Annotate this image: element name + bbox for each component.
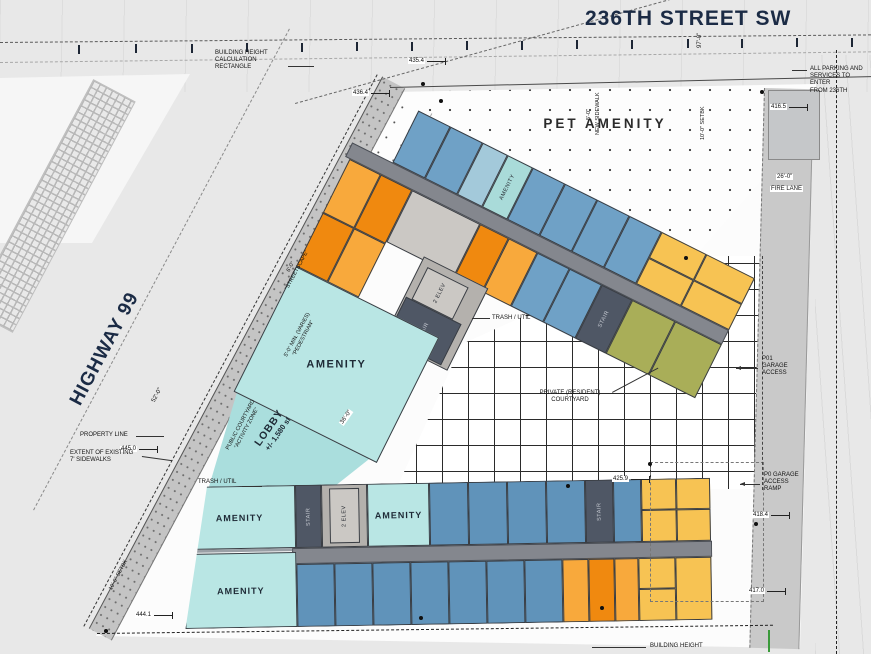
note-property-line: PROPERTY LINE xyxy=(80,432,128,439)
unit-cell xyxy=(334,563,373,627)
stair-label: STAIR xyxy=(305,507,311,525)
note-setback-top: 10'-0" SETBK xyxy=(700,106,707,140)
unit-cell xyxy=(546,480,586,544)
unit-cell xyxy=(562,559,589,622)
leader-line xyxy=(242,486,262,487)
stair-block: STAIR xyxy=(295,485,322,548)
note-p0-ramp: P0 GARAGE ACCESS RAMP xyxy=(764,472,812,494)
amenity-unit-label: AMENITY xyxy=(499,174,517,202)
note-p01-garage: P01 GARAGE ACCESS xyxy=(762,356,806,378)
station-tick xyxy=(466,41,468,50)
dim-52-0: 52'-0" xyxy=(151,387,165,404)
unit-cell xyxy=(524,559,563,623)
lower-building: AMENITY STAIR 2 ELEV AMENITY STAIR AMENI… xyxy=(183,478,713,629)
stair-block: STAIR xyxy=(585,479,614,542)
note-all-parking: ALL PARKING AND SERVICES TO ENTER FROM 2… xyxy=(810,66,871,95)
dim-435-4: 435.4 xyxy=(408,58,445,64)
dim-97-0: 97'-0" xyxy=(697,33,704,48)
unit-cell xyxy=(296,563,335,627)
amenity-label: AMENITY xyxy=(216,512,264,523)
corner-dot xyxy=(421,82,425,86)
station-tick xyxy=(576,40,578,49)
leader-line xyxy=(792,70,807,71)
station-tick xyxy=(411,42,413,51)
amenity-label: AMENITY xyxy=(217,585,265,596)
note-trash-util: TRASH / UTIL xyxy=(492,315,530,322)
amenity-block: AMENITY xyxy=(367,483,430,547)
dim-new-sidewalk: 5'-0" xyxy=(586,109,593,120)
station-tick xyxy=(301,43,303,52)
stair-label: STAIR xyxy=(596,502,602,520)
station-tick xyxy=(631,40,633,49)
unit-cell xyxy=(448,561,487,625)
amenity-label: AMENITY xyxy=(306,359,366,371)
ramp-outline xyxy=(650,462,764,602)
station-tick xyxy=(741,39,743,48)
corner-dot xyxy=(566,484,570,488)
corner-dot xyxy=(754,522,758,526)
station-tick xyxy=(521,41,523,50)
site-plan: AMENITY STAIR 2 ELEV STAIR AMEN xyxy=(0,0,871,654)
elevator-label: 2 ELEV xyxy=(433,282,448,304)
highway-title: HIGHWAY 99 xyxy=(60,278,150,421)
stair-label: STAIR xyxy=(597,310,611,329)
dim-26-0: 26'-0" xyxy=(776,174,793,181)
corner-dot xyxy=(600,606,604,610)
station-tick xyxy=(796,38,798,47)
dim-418-4: 418.4 xyxy=(752,512,789,518)
dim-416-5: 416.5 xyxy=(770,104,807,110)
pet-amenity-label: PET AMENITY xyxy=(505,116,705,131)
unit-cell xyxy=(614,558,639,621)
note-private-courtyard: PRIVATE (RESIDENT) COURTYARD xyxy=(528,390,612,404)
amenity-label: AMENITY xyxy=(375,509,423,520)
corner-dot xyxy=(419,616,423,620)
station-tick xyxy=(135,44,137,53)
note-building-height-calc: BUILDING HEIGHT CALCULATION RECTANGLE xyxy=(215,50,289,72)
leader-line xyxy=(142,456,172,461)
amenity-block: AMENITY xyxy=(184,552,297,629)
station-tick xyxy=(851,38,853,47)
unit-cell xyxy=(468,481,508,545)
dim-436-4: 436.4 xyxy=(352,90,389,96)
unit-cell xyxy=(613,479,642,542)
corner-dot xyxy=(684,256,688,260)
street-title: 236TH STREET SW xyxy=(585,7,791,31)
garage-entry xyxy=(768,90,820,160)
corner-dot xyxy=(648,462,652,466)
corner-dot xyxy=(439,99,443,103)
dim-444-1: 444.1 xyxy=(135,612,172,618)
station-tick xyxy=(687,39,689,48)
note-new-sidewalk: NEW SIDEWALK xyxy=(595,92,602,135)
unit-cell xyxy=(410,561,449,625)
note-building-height: BUILDING HEIGHT xyxy=(650,643,703,650)
corner-dot xyxy=(760,90,764,94)
unit-cell xyxy=(372,562,411,626)
note-extent-sidewalks: EXTENT OF EXISTING 7' SIDEWALKS xyxy=(70,450,144,464)
property-line-east xyxy=(836,50,837,654)
unit-cell xyxy=(486,560,525,624)
elevator-block: 2 ELEV xyxy=(329,488,360,544)
leader-line xyxy=(592,647,646,648)
elevator-label: 2 ELEV xyxy=(341,505,347,527)
unit-cell xyxy=(429,482,469,546)
dim-425-9: 425.9 xyxy=(612,476,649,482)
leader-arrow xyxy=(740,484,760,485)
station-tick xyxy=(356,42,358,51)
corner-dot xyxy=(104,629,108,633)
leader-line xyxy=(288,66,314,67)
survey-marker xyxy=(768,630,770,652)
leader-arrow xyxy=(736,368,758,369)
leader-line xyxy=(472,318,490,319)
unit-cell xyxy=(588,558,615,621)
dim-417-0: 417.0 xyxy=(748,588,785,594)
contours-right xyxy=(815,55,871,654)
unit-cell xyxy=(507,481,547,545)
leader-line xyxy=(136,436,164,437)
note-fire-lane: FIRE LANE xyxy=(770,186,803,193)
station-tick xyxy=(191,44,193,53)
station-tick xyxy=(78,45,80,54)
note-trash-util: TRASH / UTIL xyxy=(198,479,236,486)
